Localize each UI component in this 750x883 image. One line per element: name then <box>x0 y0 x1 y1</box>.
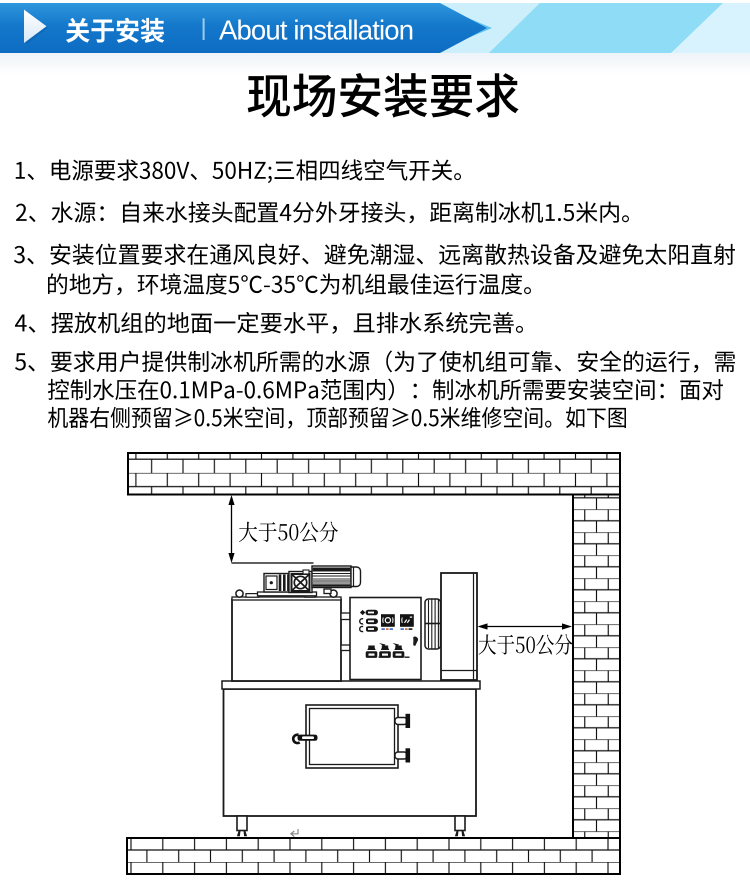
svg-text:About installation: About installation <box>219 14 414 45</box>
